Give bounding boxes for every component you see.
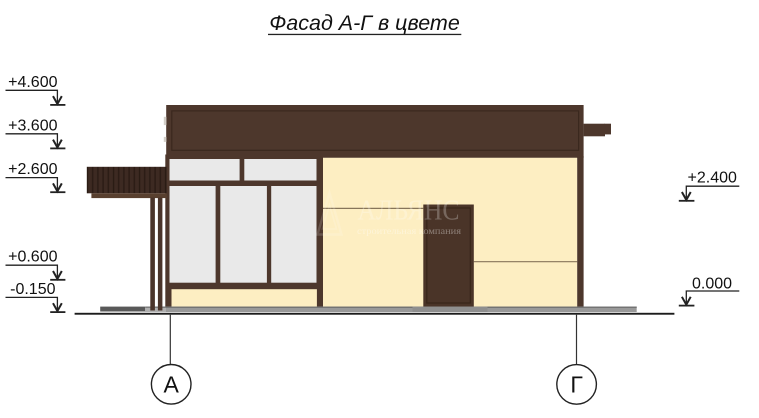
svg-text:Фасад А-Г в цвете: Фасад А-Г в цвете [269,11,460,35]
svg-text:+2.400: +2.400 [688,170,737,187]
svg-text:строительная компания: строительная компания [357,226,461,236]
svg-text:+0.600: +0.600 [8,249,57,266]
svg-text:-0.150: -0.150 [10,281,55,298]
svg-text:Г: Г [570,372,583,398]
svg-text:А: А [164,372,180,398]
svg-text:АЛЬЯНС: АЛЬЯНС [358,195,460,227]
svg-text:0.000: 0.000 [692,275,732,292]
svg-text:+2.600: +2.600 [8,161,57,178]
svg-text:+3.600: +3.600 [8,117,57,134]
svg-text:+4.600: +4.600 [8,74,57,91]
